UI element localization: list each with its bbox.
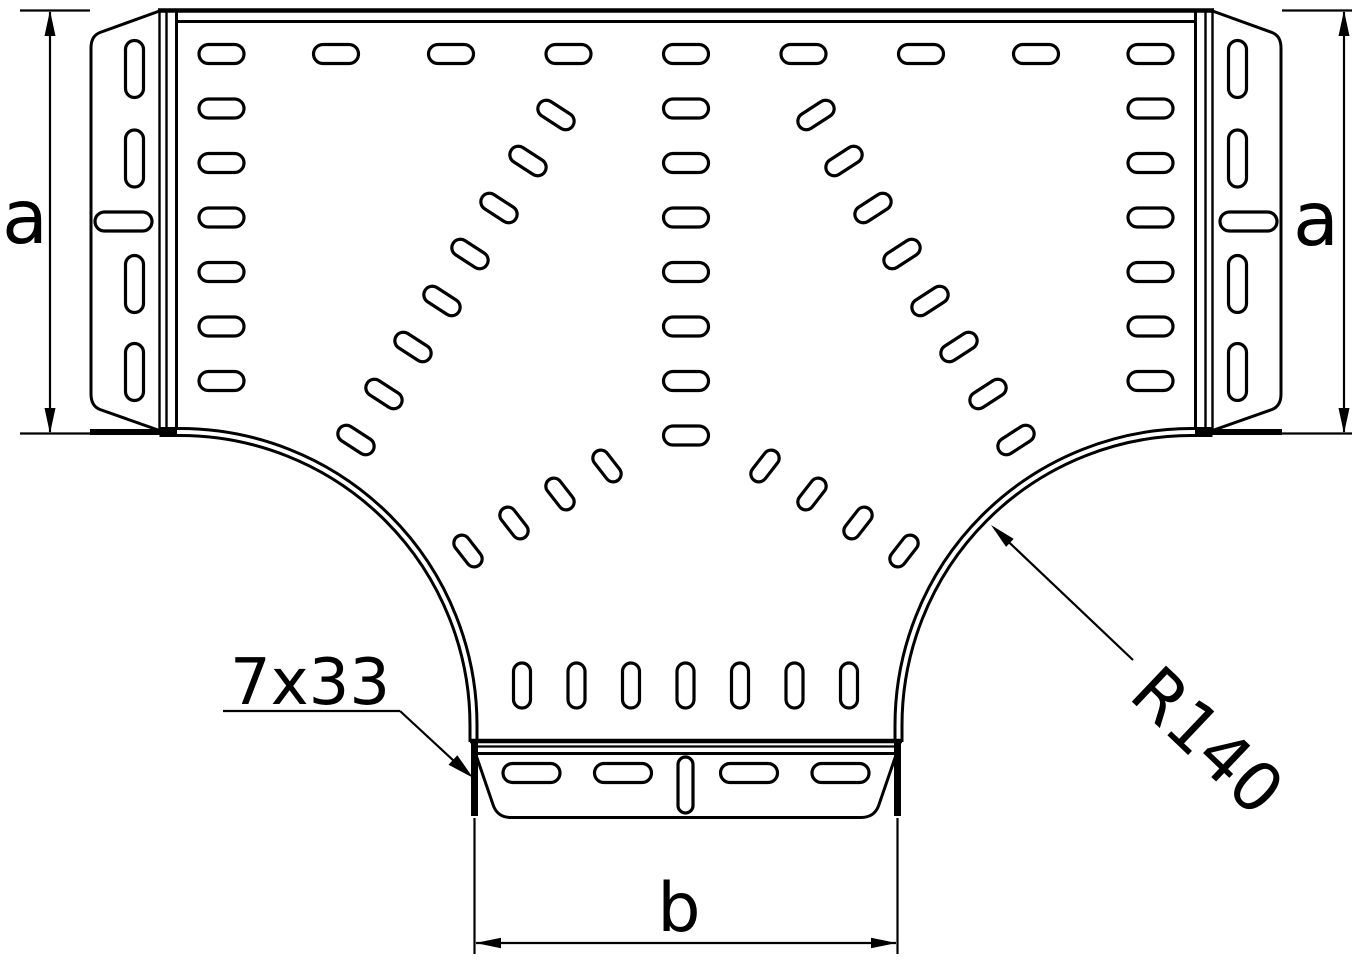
slot bbox=[881, 236, 924, 272]
leader-line bbox=[995, 529, 1133, 660]
slot bbox=[664, 45, 709, 64]
branch-slot-row bbox=[514, 663, 858, 708]
slot bbox=[1128, 45, 1173, 64]
slot bbox=[1014, 45, 1059, 64]
arrow-right-icon bbox=[871, 938, 897, 949]
right-flange-slots bbox=[1220, 41, 1277, 401]
slot bbox=[590, 447, 625, 485]
slot bbox=[623, 663, 640, 708]
slot bbox=[126, 130, 144, 187]
radius-label: R140 bbox=[1115, 652, 1298, 831]
slot bbox=[199, 154, 244, 173]
slot bbox=[664, 426, 709, 445]
slot bbox=[126, 344, 144, 401]
slot bbox=[677, 663, 694, 708]
slot bbox=[314, 45, 359, 64]
slot bbox=[795, 475, 830, 513]
slot bbox=[899, 45, 944, 64]
slot bbox=[852, 190, 895, 226]
slot bbox=[823, 143, 866, 179]
slot bbox=[507, 143, 550, 179]
slot bbox=[1128, 263, 1173, 282]
slot bbox=[938, 329, 981, 365]
dim-b-label: b bbox=[657, 869, 700, 948]
slot bbox=[795, 97, 838, 133]
slot bbox=[1229, 256, 1247, 313]
slot bbox=[1128, 154, 1173, 173]
slot bbox=[451, 532, 486, 570]
dimension-a-left: a bbox=[2, 11, 90, 434]
slot bbox=[335, 422, 378, 458]
slot bbox=[392, 329, 435, 365]
slot bbox=[199, 99, 244, 118]
slot bbox=[1128, 208, 1173, 227]
slot bbox=[126, 41, 144, 98]
left-end-flange bbox=[91, 11, 160, 431]
right-inner-slot-fan bbox=[748, 447, 922, 570]
slot bbox=[449, 236, 492, 272]
leader-r140: R140 bbox=[991, 525, 1298, 831]
slot bbox=[421, 283, 464, 319]
slot bbox=[1229, 130, 1247, 187]
arrow-up-icon bbox=[1339, 11, 1350, 37]
slot bbox=[478, 190, 521, 226]
slot bbox=[1128, 99, 1173, 118]
slot bbox=[199, 208, 244, 227]
tee-piece-schematic: a a b 7x33 R140 bbox=[0, 0, 1357, 967]
slot bbox=[664, 317, 709, 336]
slot bbox=[748, 447, 783, 485]
slot bbox=[363, 376, 406, 412]
slot bbox=[126, 256, 144, 313]
left-joint-lines bbox=[160, 10, 177, 432]
slot bbox=[568, 663, 585, 708]
perforation-center-column bbox=[664, 99, 709, 445]
slot bbox=[887, 532, 922, 570]
slot bbox=[664, 263, 709, 282]
slot bbox=[199, 372, 244, 391]
slot bbox=[503, 764, 560, 783]
slot bbox=[786, 663, 803, 708]
slot bbox=[812, 764, 869, 783]
slot bbox=[678, 757, 693, 813]
perforation-top-row bbox=[199, 45, 1173, 64]
slot bbox=[664, 154, 709, 173]
dimension-a-right: a bbox=[1282, 11, 1352, 434]
slot bbox=[995, 422, 1038, 458]
slot bbox=[535, 97, 578, 133]
slot bbox=[199, 45, 244, 64]
slot-pattern-label: 7x33 bbox=[230, 646, 390, 720]
slot bbox=[199, 317, 244, 336]
slot bbox=[664, 208, 709, 227]
slot bbox=[546, 45, 591, 64]
slot bbox=[721, 764, 778, 783]
slot bbox=[497, 504, 532, 542]
dimension-b: b bbox=[475, 818, 898, 954]
bottom-flange bbox=[470, 741, 902, 818]
slot bbox=[595, 764, 652, 783]
slot bbox=[909, 283, 952, 319]
cable-tray-tee-drawing: a a b 7x33 R140 bbox=[0, 0, 1357, 967]
slot bbox=[967, 376, 1010, 412]
arrow-down-icon bbox=[1339, 408, 1350, 434]
slot bbox=[514, 663, 531, 708]
slot bbox=[199, 263, 244, 282]
slot bbox=[664, 99, 709, 118]
bottom-flange-slots bbox=[503, 757, 869, 813]
slot bbox=[732, 663, 749, 708]
slot bbox=[1128, 317, 1173, 336]
slot bbox=[1128, 372, 1173, 391]
slot bbox=[1220, 212, 1277, 231]
slot bbox=[841, 663, 858, 708]
right-joint-lines bbox=[1196, 10, 1213, 432]
slot bbox=[1229, 41, 1247, 98]
perforation-right-column bbox=[1128, 99, 1173, 391]
perforation-left-column bbox=[199, 99, 244, 391]
arrow-down-icon bbox=[45, 408, 56, 434]
slot bbox=[429, 45, 474, 64]
left-flange-slots bbox=[95, 41, 152, 401]
right-outer-slot-fan bbox=[795, 97, 1038, 458]
left-inner-slot-fan bbox=[451, 447, 625, 570]
right-end-flange bbox=[1213, 11, 1282, 431]
dim-a-right-label: a bbox=[1293, 175, 1339, 263]
arrow-left-icon bbox=[476, 938, 502, 949]
left-outer-slot-fan bbox=[335, 97, 578, 458]
slot bbox=[841, 504, 876, 542]
dim-a-left-label: a bbox=[2, 173, 48, 261]
arrow-up-icon bbox=[45, 11, 56, 37]
slot bbox=[95, 212, 152, 231]
leader-7x33: 7x33 bbox=[223, 646, 473, 778]
slot bbox=[781, 45, 826, 64]
slot bbox=[543, 475, 578, 513]
slot bbox=[664, 372, 709, 391]
slot bbox=[1229, 344, 1247, 401]
